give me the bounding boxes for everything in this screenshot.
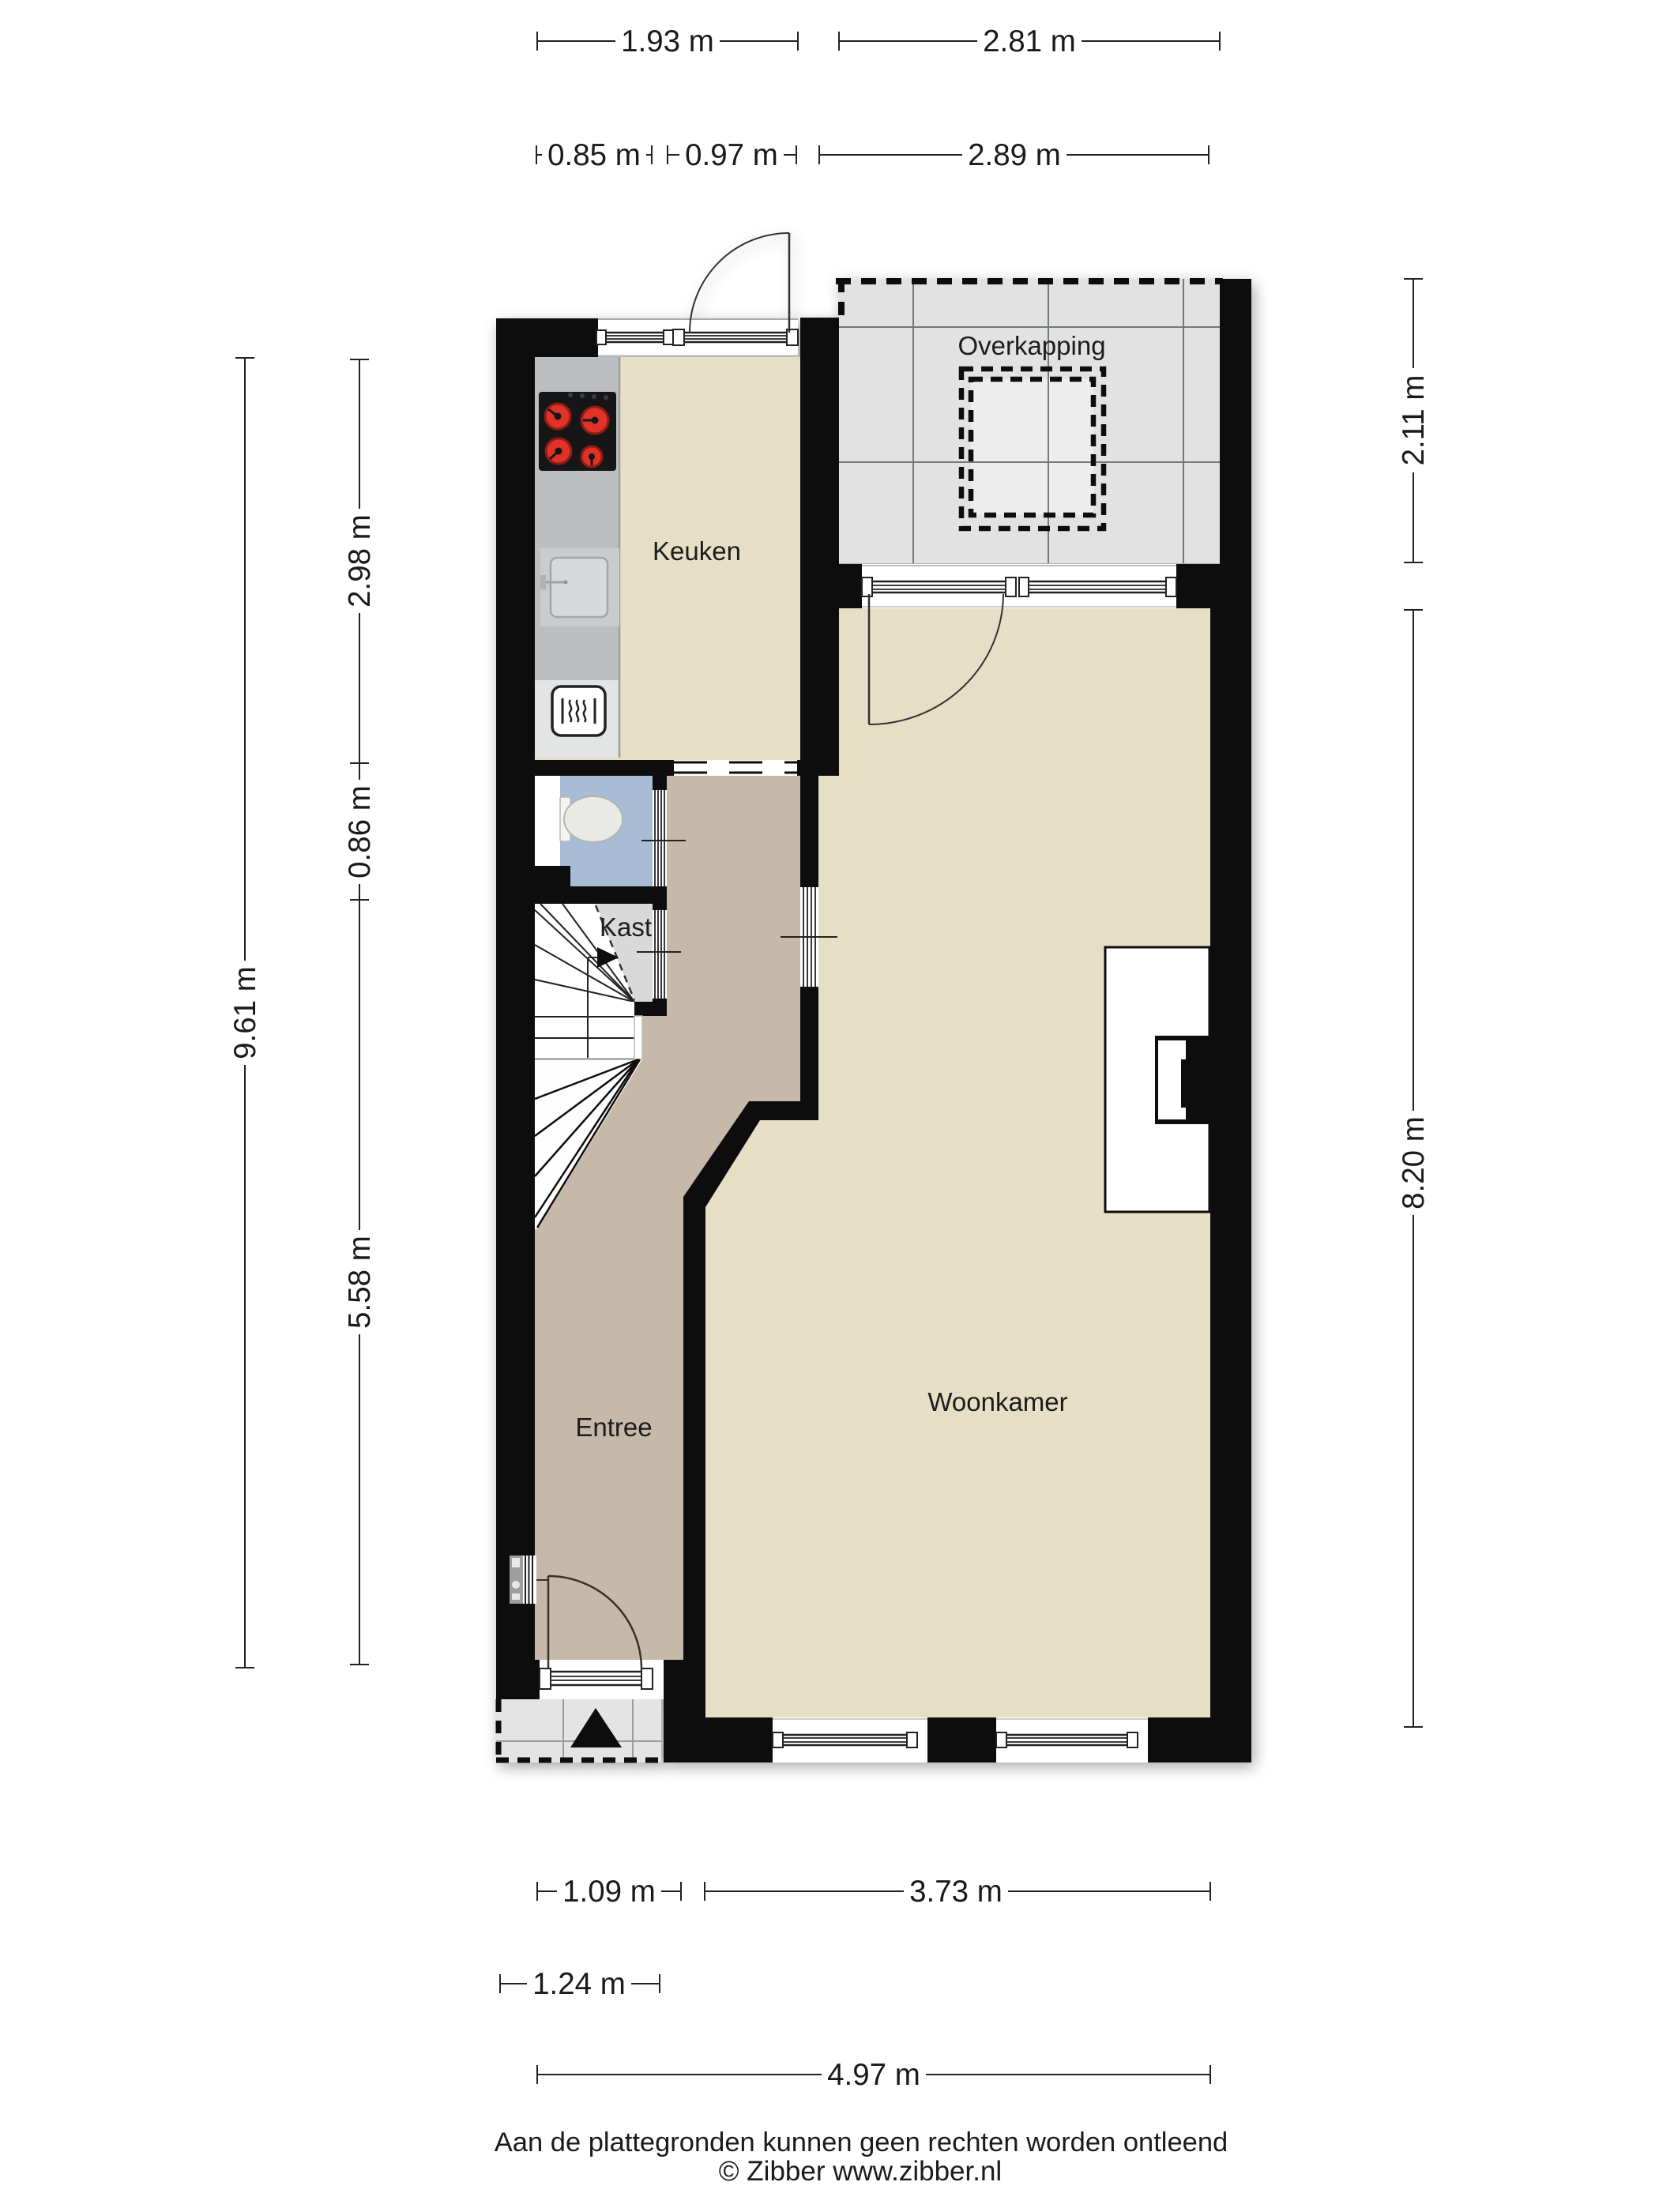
svg-text:0.86 m: 0.86 m <box>343 785 377 878</box>
svg-text:Entree: Entree <box>575 1413 652 1442</box>
svg-text:Overkapping: Overkapping <box>957 331 1105 360</box>
svg-text:Keuken: Keuken <box>653 536 741 566</box>
svg-text:1.24 m: 1.24 m <box>532 1967 626 2001</box>
svg-text:Kast: Kast <box>600 912 652 942</box>
svg-text:1.09 m: 1.09 m <box>562 1875 656 1909</box>
svg-text:5.58 m: 5.58 m <box>343 1236 377 1329</box>
svg-text:0.97 m: 0.97 m <box>685 138 778 172</box>
svg-text:2.11 m: 2.11 m <box>1397 375 1431 466</box>
svg-text:0.85 m: 0.85 m <box>547 138 641 172</box>
svg-text:3.73 m: 3.73 m <box>909 1875 1003 1909</box>
svg-text:9.61 m: 9.61 m <box>228 966 262 1059</box>
svg-text:1.93 m: 1.93 m <box>621 24 714 58</box>
svg-text:4.97 m: 4.97 m <box>827 2058 920 2092</box>
svg-text:© Zibber www.zibber.nl: © Zibber www.zibber.nl <box>719 2156 1002 2187</box>
svg-text:2.98 m: 2.98 m <box>343 514 377 608</box>
svg-text:Aan de plattegronden kunnen ge: Aan de plattegronden kunnen geen rechten… <box>495 2127 1228 2157</box>
svg-text:Woonkamer: Woonkamer <box>927 1387 1067 1416</box>
svg-text:2.81 m: 2.81 m <box>983 24 1076 58</box>
svg-text:8.20 m: 8.20 m <box>1397 1116 1431 1209</box>
svg-text:2.89 m: 2.89 m <box>968 138 1061 172</box>
